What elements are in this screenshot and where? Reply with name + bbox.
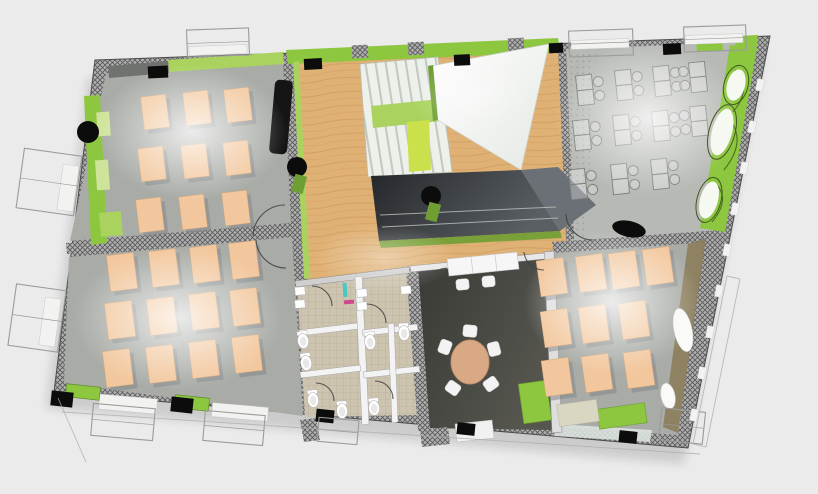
sink xyxy=(357,302,368,311)
workstation-desk xyxy=(570,183,587,200)
glare-spot xyxy=(412,62,528,134)
pink-accent xyxy=(344,300,354,305)
stair-wall-lime xyxy=(407,120,431,172)
square-column xyxy=(148,65,169,78)
glare-spot xyxy=(73,246,283,390)
window-sill-line xyxy=(92,419,154,424)
round-column xyxy=(287,157,307,177)
chair-circle xyxy=(587,184,598,195)
square-column xyxy=(304,58,323,70)
glare-spot xyxy=(556,40,740,196)
window-sill-line xyxy=(187,41,249,43)
green-shelf xyxy=(95,160,110,191)
window-sill xyxy=(189,44,247,55)
glare-spot xyxy=(524,230,700,374)
desk xyxy=(136,197,165,233)
sink xyxy=(295,300,306,309)
side-chair xyxy=(456,278,470,290)
round-column xyxy=(77,121,99,143)
square-column xyxy=(50,390,73,407)
sink xyxy=(295,287,306,296)
floor-plan-stage xyxy=(0,0,818,494)
square-column xyxy=(663,43,682,55)
hall-north-hatch-seg xyxy=(352,45,369,59)
square-column xyxy=(549,43,564,54)
green-shelf xyxy=(99,211,123,237)
square-column xyxy=(618,430,637,444)
meeting-chair xyxy=(463,324,478,337)
glare-spot xyxy=(97,64,287,200)
round-table xyxy=(451,340,489,384)
floor-plan-canvas xyxy=(0,0,818,494)
square-column xyxy=(170,396,193,413)
square-column xyxy=(454,54,471,66)
glare-spot xyxy=(313,224,457,292)
side-chair xyxy=(482,275,496,287)
hall-north-hatch-seg xyxy=(408,42,425,56)
square-column xyxy=(456,422,475,436)
